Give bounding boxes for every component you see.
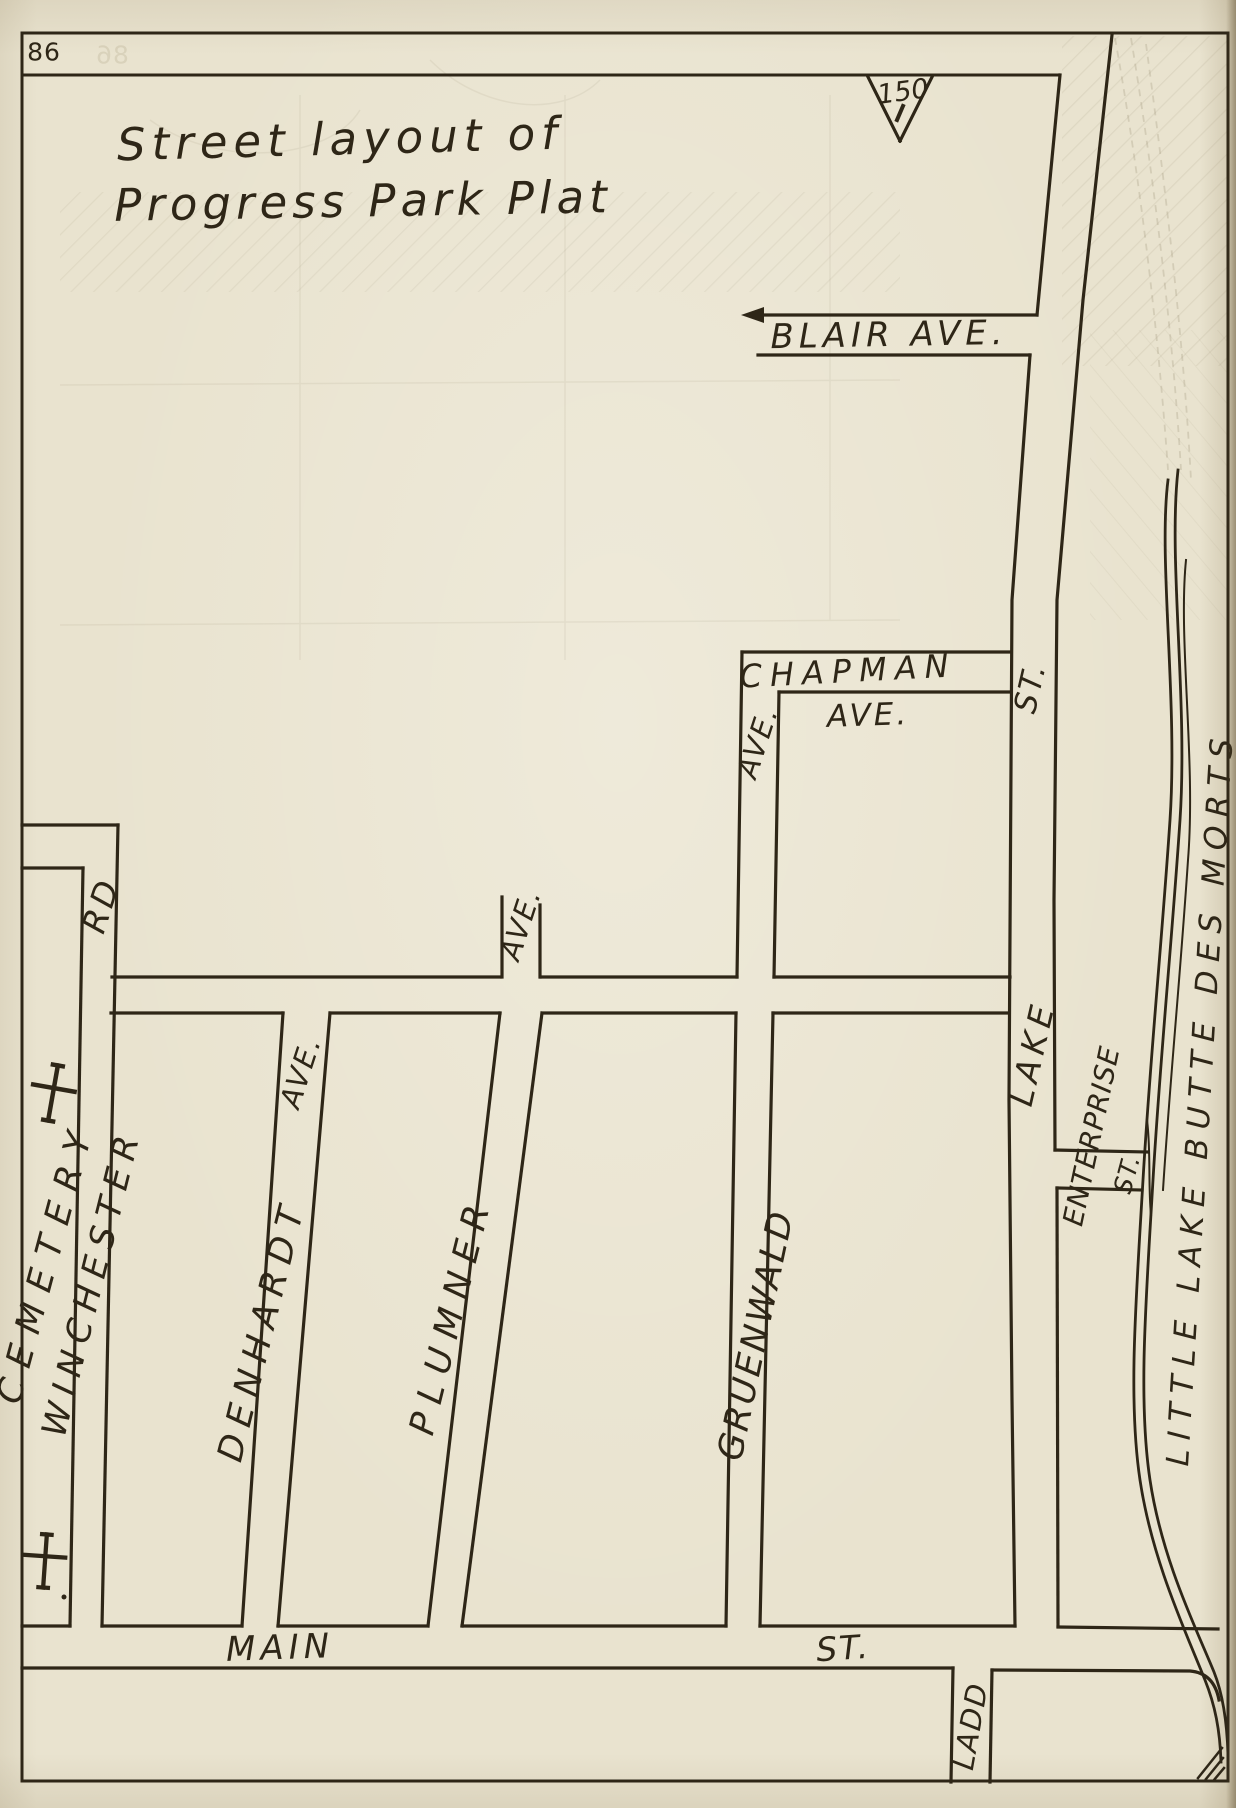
cemetery-rd-road-lines [22, 825, 118, 868]
main-st-road-lines [22, 1626, 1219, 1700]
map-title-line1: Street layout of [116, 111, 563, 168]
mid-street-road-lines [111, 977, 1010, 1013]
main-st-suffix-label: ST. [815, 1630, 871, 1667]
chapman-ave-suffix-label: AVE. [826, 699, 909, 733]
cemetery-cross-icon [27, 1062, 78, 1124]
page-number: 86 [27, 40, 61, 65]
page-number-ghost: 86 [95, 43, 129, 68]
survey-marker-label: 150 [876, 75, 931, 109]
plat-map-page: 86 86 Street layout of Progress Park Pla… [0, 0, 1236, 1808]
map-title-line2: Progress Park Plat [114, 174, 612, 228]
outer-border [22, 33, 1228, 1781]
cemetery-cross-icon [23, 1533, 67, 1599]
plat-north-east-boundary [1037, 75, 1060, 315]
blair-ave-label: BLAIR AVE. [770, 316, 1008, 354]
blair-arrowhead [741, 307, 764, 323]
main-st-label: MAIN [225, 1629, 334, 1667]
gruenwald-ave-road-lines [726, 652, 779, 1626]
plat-map-drawing [0, 0, 1236, 1808]
